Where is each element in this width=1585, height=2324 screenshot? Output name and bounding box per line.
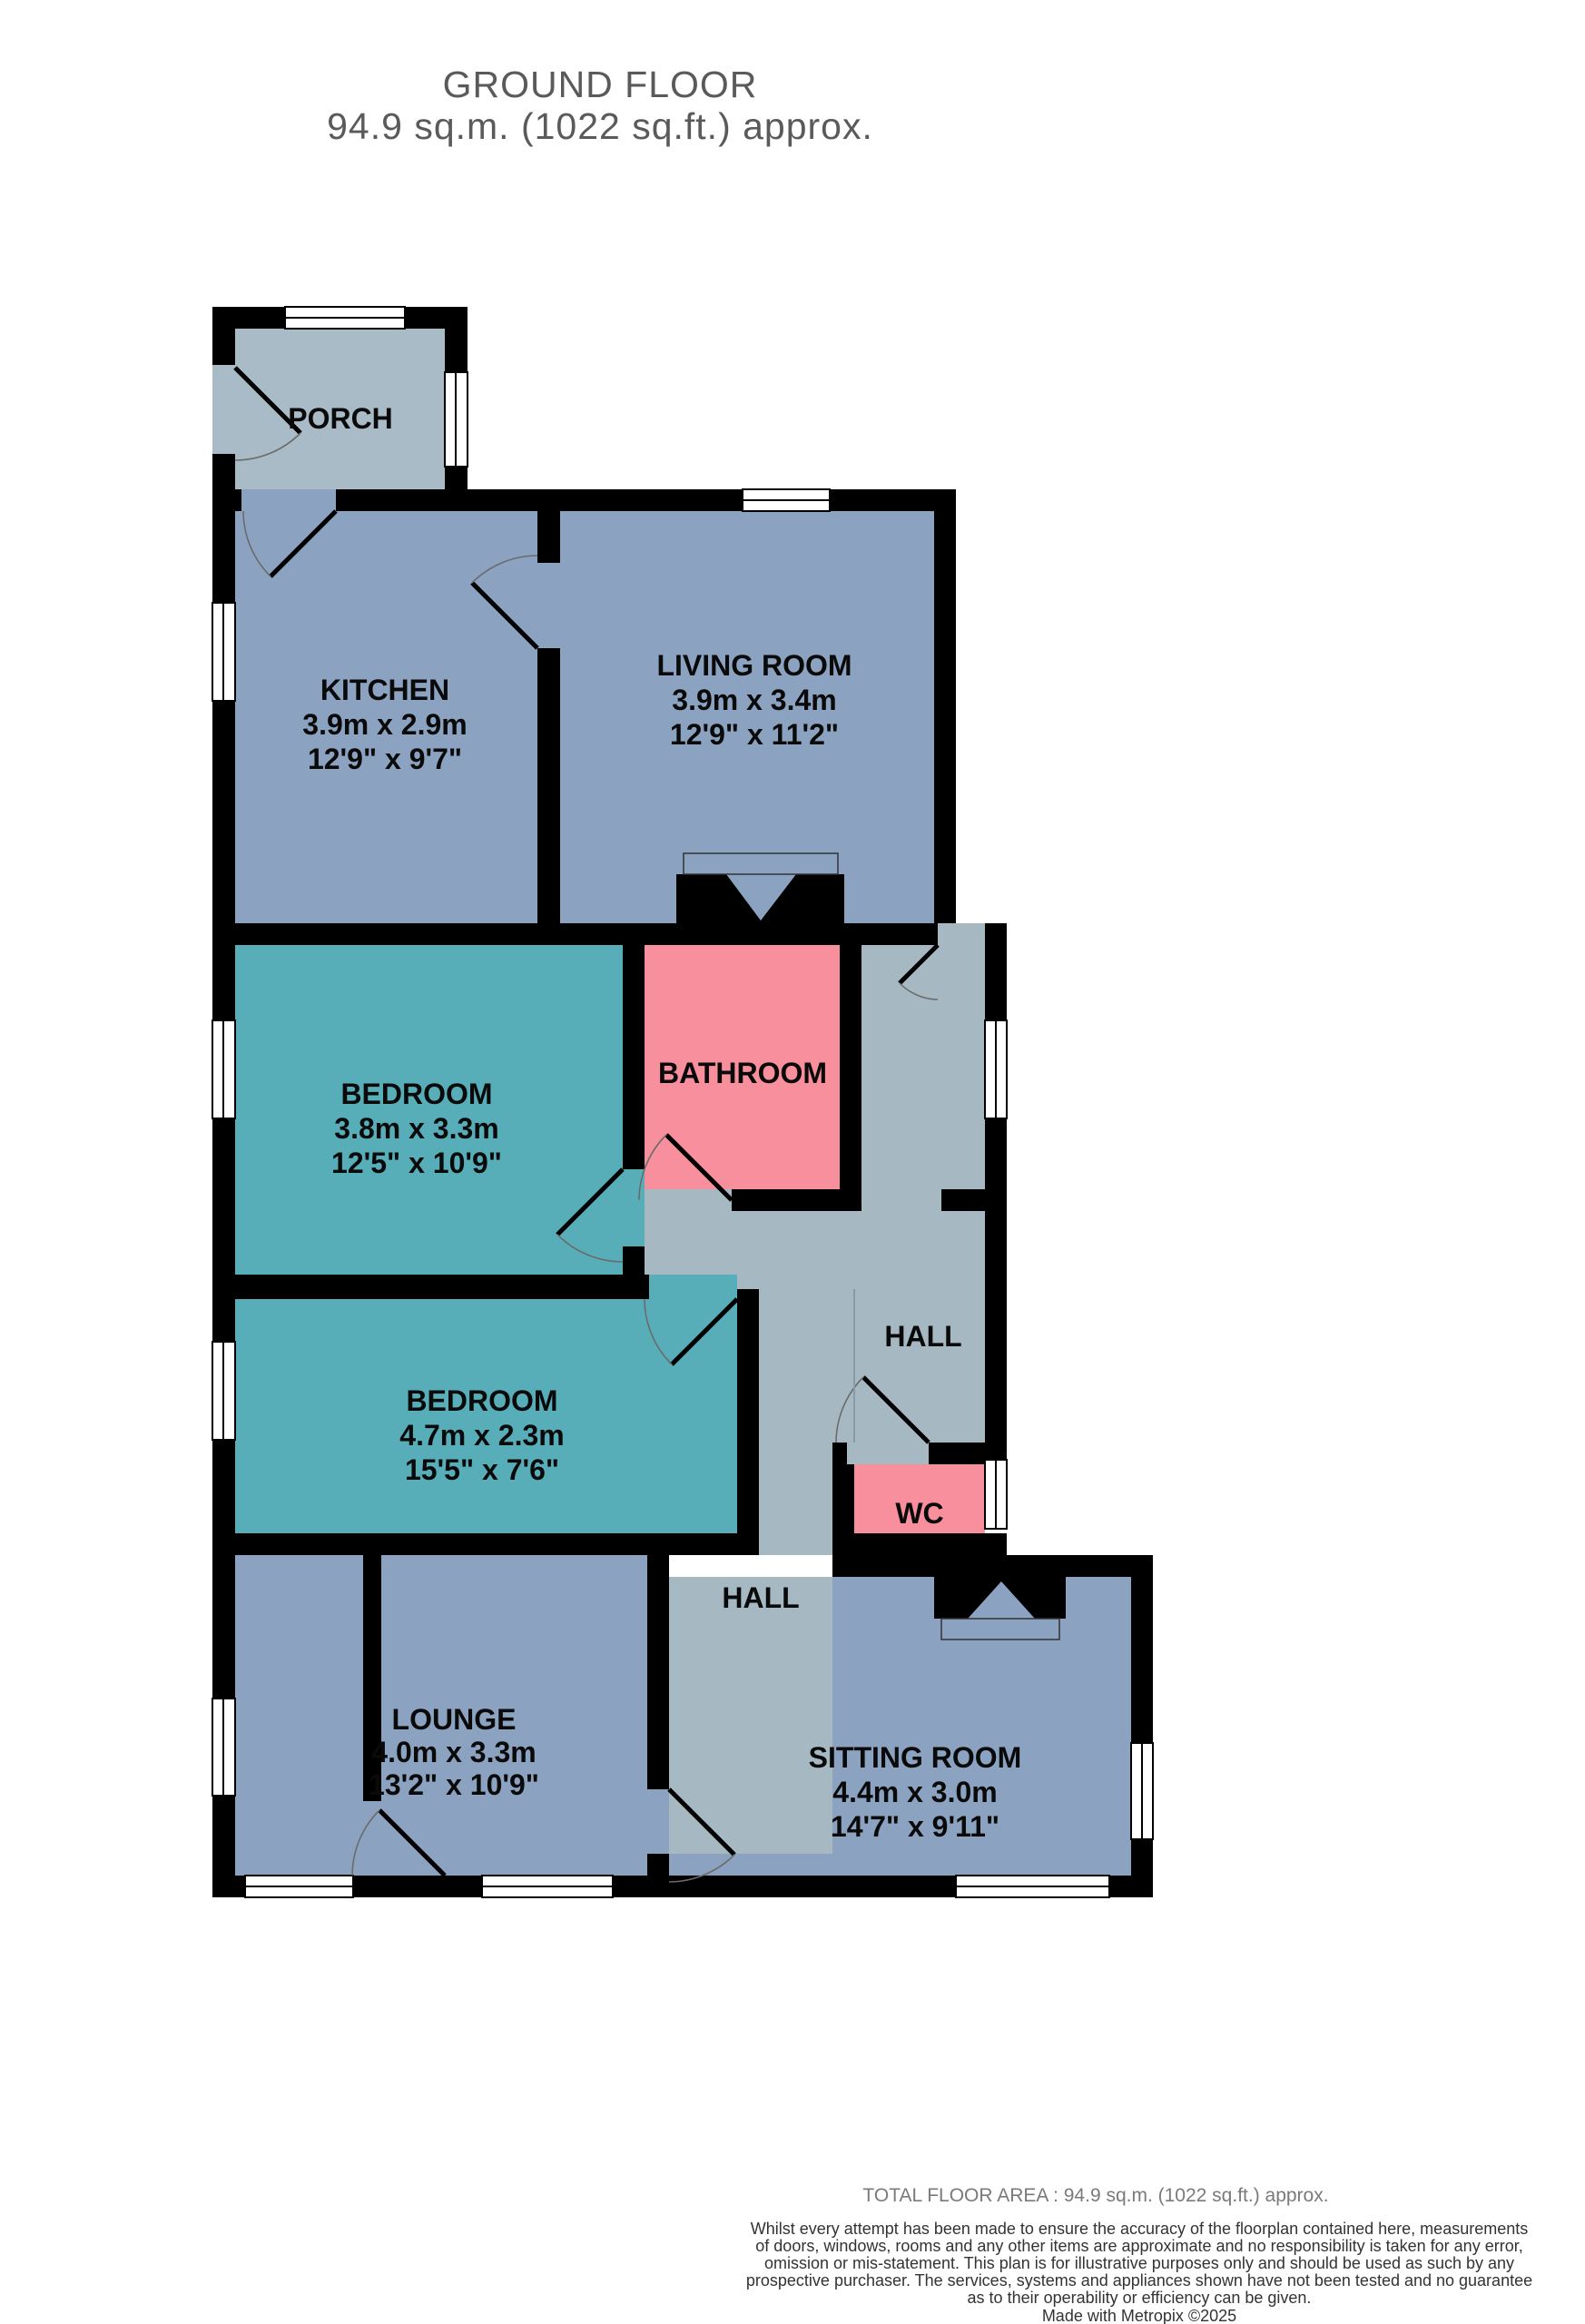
bedroom2-door-gap (649, 1275, 737, 1299)
kitchen-left-window (212, 603, 235, 701)
sitting-room-chimney (934, 1577, 1066, 1640)
room-dims-imperial-kitchen: 12'9" x 9'7" (308, 743, 462, 775)
wc-door-gap (847, 1443, 929, 1464)
room-label-bedroom2: BEDROOM (406, 1384, 557, 1417)
room-dims-metric-kitchen: 3.9m x 2.9m (302, 708, 467, 741)
room-label-bathroom: BATHROOM (658, 1057, 827, 1089)
lounge-bottom-window-left (245, 1876, 353, 1897)
room-dims-imperial-living-room: 12'9" x 11'2" (670, 718, 839, 751)
floorplan-page: GROUND FLOOR 94.9 sq.m. (1022 sq.ft.) ap… (0, 0, 1585, 2324)
hall-door-gap (938, 923, 992, 945)
lounge-bottom-window-right (482, 1876, 613, 1897)
room-dims-imperial-lounge: 13'2" x 10'9" (369, 1768, 539, 1801)
room-dims-imperial-sitting-room: 14'7" x 9'11" (831, 1810, 999, 1843)
room-dims-metric-living-room: 3.9m x 3.4m (672, 684, 836, 716)
hall-open-gap (861, 1189, 941, 1211)
porch-door-gap (212, 365, 235, 454)
porch-top-window (285, 307, 405, 329)
lounge-left-window (212, 1699, 235, 1796)
porch-right-window (445, 372, 468, 467)
living-room-chimney (676, 853, 844, 923)
disclaimer-line-5: as to their operability or efficiency ca… (731, 2290, 1548, 2307)
sitting-room-right-window (1131, 1743, 1153, 1839)
disclaimer-line-2: of doors, windows, rooms and any other i… (731, 2238, 1548, 2255)
hall-mid2-floor (759, 1443, 832, 1555)
wc-right-window (985, 1460, 1007, 1529)
sitting-room-bottom-window (956, 1876, 1109, 1897)
bedroom2-left-window (212, 1342, 235, 1440)
total-floor-area: TOTAL FLOOR AREA : 94.9 sq.m. (1022 sq.f… (642, 2185, 1550, 2207)
hall-right-window (985, 1020, 1007, 1118)
room-dims-metric-bedroom1: 3.8m x 3.3m (334, 1112, 498, 1145)
disclaimer-line-1: Whilst every attempt has been made to en… (731, 2221, 1548, 2238)
room-label-living-room: LIVING ROOM (656, 649, 852, 682)
room-label-kitchen: KITCHEN (320, 674, 449, 706)
kitchen-door-gap (241, 489, 336, 511)
room-dims-imperial-bedroom1: 12'5" x 10'9" (331, 1147, 502, 1179)
disclaimer-line-4: prospective purchaser. The services, sys… (731, 2272, 1548, 2290)
bedroom1-left-window (212, 1020, 235, 1118)
living-room-top-window (743, 489, 830, 511)
room-label-porch: PORCH (288, 402, 393, 435)
room-dims-imperial-bedroom2: 15'5" x 7'6" (405, 1453, 559, 1486)
disclaimer: Whilst every attempt has been made to en… (731, 2221, 1548, 2307)
room-label-hall-lower: HALL (722, 1581, 799, 1614)
room-label-lounge: LOUNGE (392, 1703, 517, 1736)
floorplan-drawing: PORCH KITCHEN 3.9m x 2.9m 12'9" x 9'7" L… (0, 0, 1585, 2324)
living-door-gap (537, 563, 560, 648)
room-dims-metric-sitting-room: 4.4m x 3.0m (832, 1776, 997, 1808)
room-label-wc: WC (895, 1497, 943, 1530)
metropix-credit: Made with Metropix ©2025 (731, 2307, 1548, 2324)
hall-mid-floor (759, 1289, 985, 1443)
room-dims-metric-bedroom2: 4.7m x 2.3m (399, 1419, 564, 1452)
room-dims-metric-lounge: 4.0m x 3.3m (371, 1736, 536, 1768)
room-label-hall-upper: HALL (884, 1320, 961, 1353)
room-label-sitting-room: SITTING ROOM (809, 1741, 1022, 1774)
sitting-door-gap (647, 1789, 669, 1854)
disclaimer-line-3: omission or mis-statement. This plan is … (731, 2255, 1548, 2272)
bathroom-door-gap (645, 1189, 732, 1211)
room-label-bedroom1: BEDROOM (340, 1078, 492, 1110)
